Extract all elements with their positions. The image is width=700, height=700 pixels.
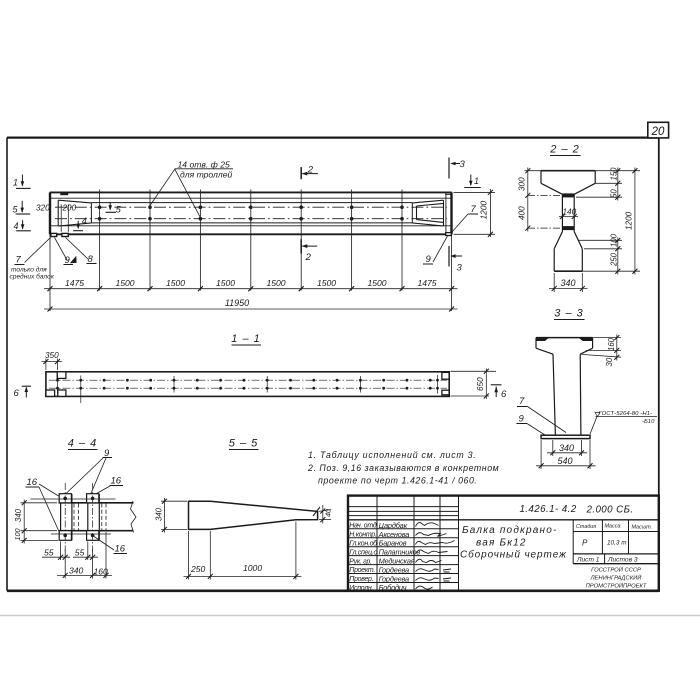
svg-text:Мединская: Мединская <box>379 557 415 566</box>
svg-text:300: 300 <box>518 177 527 191</box>
svg-text:Листов 3: Листов 3 <box>607 557 638 564</box>
svg-text:160: 160 <box>607 337 616 351</box>
svg-text:2 – 2: 2 – 2 <box>549 144 579 156</box>
svg-text:ГОСТ-5264-80 -Н1-: ГОСТ-5264-80 -Н1- <box>599 411 653 417</box>
svg-text:7: 7 <box>519 396 525 407</box>
svg-text:Лист 1: Лист 1 <box>576 557 600 564</box>
svg-text:Гордеева: Гордеева <box>379 566 409 575</box>
svg-text:только для: только для <box>11 266 47 274</box>
svg-text:4 – 4: 4 – 4 <box>68 438 97 450</box>
svg-text:ЛЕНИНГРАДСКИЙ: ЛЕНИНГРАДСКИЙ <box>590 574 643 582</box>
svg-text:540: 540 <box>557 456 572 466</box>
svg-text:14 отв. ф 25: 14 отв. ф 25 <box>178 159 230 169</box>
svg-text:160: 160 <box>94 567 109 577</box>
svg-text:5 – 5: 5 – 5 <box>229 438 258 450</box>
svg-text:-Б10: -Б10 <box>642 419 655 425</box>
svg-text:55: 55 <box>44 547 54 557</box>
svg-text:ПРОМСТРОЙПРОЕКТ: ПРОМСТРОЙПРОЕКТ <box>586 582 647 590</box>
svg-text:30: 30 <box>605 357 614 366</box>
svg-text:5: 5 <box>116 205 122 215</box>
svg-text:7: 7 <box>471 204 477 215</box>
svg-text:Гл.кон.об: Гл.кон.об <box>349 539 378 547</box>
svg-text:Масшт.: Масшт. <box>632 525 653 531</box>
svg-text:6: 6 <box>501 389 507 400</box>
svg-text:6: 6 <box>14 388 20 399</box>
svg-text:Палатников: Палатников <box>379 548 421 557</box>
svg-text:1500: 1500 <box>115 278 134 288</box>
svg-text:1200: 1200 <box>479 201 489 220</box>
svg-text:1475: 1475 <box>417 278 436 288</box>
svg-text:4: 4 <box>14 221 19 231</box>
svg-text:340: 340 <box>14 508 23 522</box>
svg-text:200: 200 <box>62 204 77 213</box>
svg-text:340: 340 <box>560 278 575 288</box>
svg-text:Бободич: Бободич <box>379 583 407 592</box>
svg-text:Исполн.: Исполн. <box>349 585 373 592</box>
svg-text:2: 2 <box>305 252 312 263</box>
svg-text:1200: 1200 <box>625 211 634 230</box>
svg-text:Баранов: Баранов <box>379 539 407 548</box>
svg-text:1500: 1500 <box>166 278 185 288</box>
svg-text:1475: 1475 <box>65 278 84 288</box>
svg-text:средних балок: средних балок <box>10 273 55 281</box>
svg-text:Провер.: Провер. <box>349 576 373 583</box>
svg-text:100: 100 <box>610 233 619 247</box>
svg-text:для троллей: для троллей <box>180 169 232 179</box>
svg-text:400: 400 <box>518 206 527 220</box>
svg-text:55: 55 <box>75 547 85 557</box>
svg-text:1 – 1: 1 – 1 <box>231 333 260 345</box>
svg-text:2. Поз. 9,16 заказываются в ко: 2. Поз. 9,16 заказываются в конкретном <box>307 463 499 473</box>
svg-text:16: 16 <box>27 477 38 488</box>
svg-text:340: 340 <box>559 443 574 453</box>
svg-text:1500: 1500 <box>367 278 386 288</box>
svg-text:7: 7 <box>16 255 22 266</box>
svg-text:320: 320 <box>36 204 50 213</box>
svg-text:Цардбак: Цардбак <box>379 521 408 530</box>
svg-text:Р: Р <box>582 539 588 548</box>
svg-text:вая Бк12: вая Бк12 <box>476 538 527 549</box>
svg-text:40: 40 <box>324 509 333 517</box>
svg-text:Рук. гр.: Рук. гр. <box>349 558 372 565</box>
svg-text:3 – 3: 3 – 3 <box>554 308 583 320</box>
svg-text:Стадия: Стадия <box>576 524 596 530</box>
svg-text:Нач. отд: Нач. отд <box>349 522 377 530</box>
svg-text:Н.контр.: Н.контр. <box>349 531 377 538</box>
svg-text:1000: 1000 <box>243 563 262 573</box>
svg-text:Гл.спец.о: Гл.спец.о <box>349 549 377 556</box>
svg-text:3: 3 <box>457 263 463 274</box>
svg-text:16: 16 <box>111 476 122 487</box>
svg-text:150: 150 <box>610 167 619 181</box>
svg-text:Аксенова: Аксенова <box>378 530 410 539</box>
svg-text:9: 9 <box>426 254 432 265</box>
svg-text:9: 9 <box>519 414 525 425</box>
svg-text:2.000 СБ.: 2.000 СБ. <box>585 505 633 516</box>
svg-text:2: 2 <box>307 164 314 175</box>
svg-text:250: 250 <box>610 252 619 267</box>
svg-text:5: 5 <box>13 205 19 215</box>
svg-text:250: 250 <box>190 564 206 574</box>
svg-text:140: 140 <box>563 208 577 217</box>
svg-text:1: 1 <box>13 178 18 188</box>
svg-text:16: 16 <box>115 544 126 555</box>
svg-text:3: 3 <box>460 159 466 170</box>
svg-text:Гордеева: Гордеева <box>379 575 409 584</box>
svg-text:340: 340 <box>154 507 163 521</box>
svg-text:100: 100 <box>13 529 22 541</box>
svg-text:10,3 т: 10,3 т <box>607 540 627 547</box>
svg-text:1500: 1500 <box>266 278 285 288</box>
svg-text:Балка подкрано-: Балка подкрано- <box>462 525 558 536</box>
svg-text:Сборочный чертеж: Сборочный чертеж <box>460 549 567 561</box>
svg-text:350: 350 <box>45 351 59 360</box>
svg-text:1. Таблицу исполнений см. лис: 1. Таблицу исполнений см. лист 3. <box>308 450 476 460</box>
svg-text:1.426.1- 4.2: 1.426.1- 4.2 <box>519 504 576 515</box>
svg-text:650: 650 <box>476 377 485 391</box>
svg-text:1500: 1500 <box>317 278 336 288</box>
svg-text:11950: 11950 <box>225 298 249 308</box>
svg-text:340: 340 <box>69 566 84 576</box>
svg-text:20: 20 <box>651 126 665 138</box>
svg-text:4: 4 <box>82 216 87 226</box>
svg-text:ГОССТРОЙ СССР: ГОССТРОЙ СССР <box>591 566 641 574</box>
svg-text:Проект.: Проект. <box>349 567 375 574</box>
svg-text:50: 50 <box>610 189 619 198</box>
svg-text:1500: 1500 <box>216 278 235 288</box>
svg-text:проекте по черт 1.426.1-41 / 0: проекте по черт 1.426.1-41 / 060. <box>318 476 477 486</box>
svg-text:1: 1 <box>474 176 479 186</box>
svg-text:Масса: Масса <box>605 524 621 530</box>
